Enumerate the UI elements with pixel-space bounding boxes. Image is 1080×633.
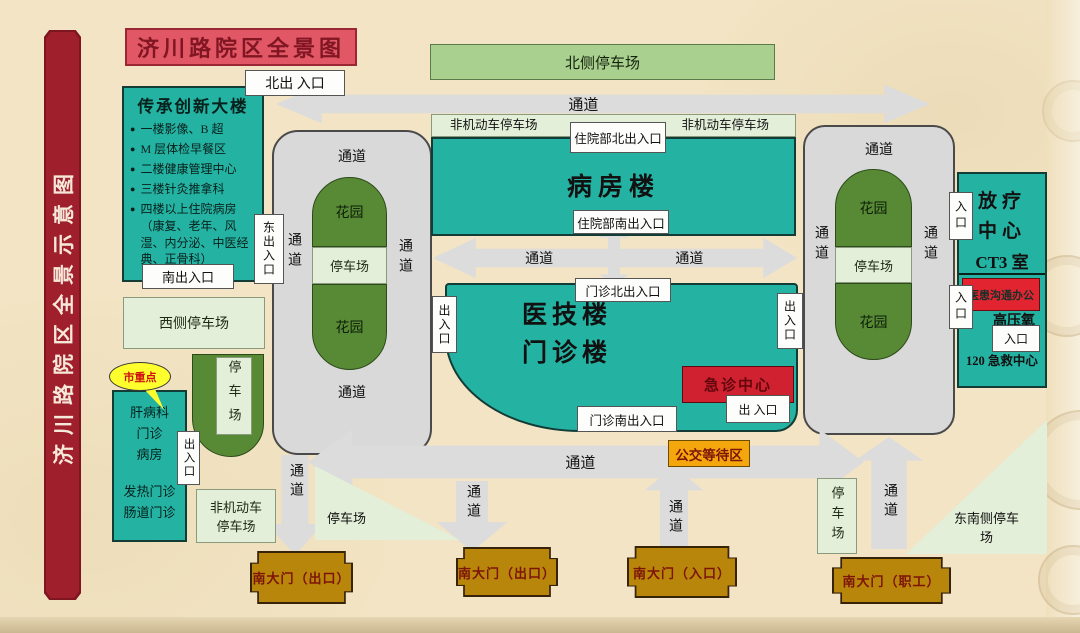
clinic-north-door: 门诊北出入口 bbox=[575, 278, 671, 302]
garden-label: 花园 bbox=[860, 198, 888, 218]
bottom-edge-strip bbox=[0, 617, 1080, 633]
comm-office: 医患沟通办公 bbox=[962, 278, 1040, 311]
channel-label: 通道 bbox=[285, 463, 305, 501]
heritage-north-door: 北出 入口 bbox=[245, 70, 345, 96]
bullet-icon: ● bbox=[130, 161, 135, 178]
liver-dept-building: 肝病科 门诊 病房 发热门诊 肠道门诊 bbox=[112, 390, 187, 542]
side-ribbon: 济川路院区全景示意图 bbox=[44, 30, 81, 600]
emergency-center-label: 急诊中心 bbox=[704, 374, 772, 395]
channel-label: 通道 bbox=[810, 225, 830, 265]
comm-office-entrance-door: 入口 bbox=[949, 285, 973, 329]
page-title: 济川路院区全景图 bbox=[137, 31, 345, 63]
parking-label: 停车场 bbox=[225, 360, 244, 432]
se-parking-label: 东南侧停车 场 bbox=[934, 508, 1039, 546]
hyperbaric-entrance-door: 入口 bbox=[992, 325, 1040, 352]
clinic-west-door: 出入口 bbox=[432, 296, 457, 353]
nonmotor-parking-label: 非机动车停车场 bbox=[450, 115, 538, 136]
building-floor-item: 一楼影像、B 超 bbox=[140, 121, 223, 138]
title-banner: 济川路院区全景图 bbox=[125, 28, 357, 66]
gate2-channel-arrow: 通道 bbox=[437, 481, 507, 552]
garden-label: 花园 bbox=[336, 317, 364, 337]
bullet-icon: ● bbox=[130, 201, 135, 268]
liver-line: 门诊 bbox=[114, 423, 185, 444]
inpatient-north-door: 住院部北出入口 bbox=[570, 122, 666, 153]
channel-label: 通道 bbox=[919, 225, 939, 265]
mid-left-channel-arrow: 通道 bbox=[433, 237, 637, 279]
decor-ring bbox=[1038, 545, 1080, 615]
heritage-east-door: 东出入口 bbox=[254, 214, 284, 284]
clinic-east-door: 出入口 bbox=[777, 293, 803, 349]
city-key-badge: 市重点 bbox=[109, 362, 171, 391]
parking-label: 停车场 bbox=[330, 256, 369, 275]
radiotherapy-entrance-door: 入口 bbox=[949, 192, 973, 240]
inpatient-south-door: 住院部南出入口 bbox=[573, 210, 669, 234]
garden-area: 花园 bbox=[835, 283, 912, 360]
building-name: 传承创新大楼 bbox=[130, 93, 256, 117]
bullet-icon: ● bbox=[130, 141, 135, 158]
heritage-innovation-building: 传承创新大楼 ●一楼影像、B 超 ●M 层体检早餐区 ●二楼健康管理中心 ●三楼… bbox=[122, 86, 264, 282]
emergency-door: 出 入口 bbox=[726, 395, 790, 423]
channel-label: 通道 bbox=[568, 94, 598, 115]
building-floor-item: 二楼健康管理中心 bbox=[140, 161, 236, 178]
garden-label: 花园 bbox=[860, 312, 888, 332]
north-parking-lot: 北侧停车场 bbox=[430, 44, 775, 80]
bullet-icon: ● bbox=[130, 121, 135, 138]
channel-label: 通道 bbox=[865, 139, 893, 159]
garden-area: 花园 bbox=[835, 169, 912, 247]
channel-label: 通道 bbox=[462, 484, 482, 522]
bowel-clinic-line: 肠道门诊 bbox=[114, 502, 185, 523]
channel-label: 通道 bbox=[525, 248, 553, 268]
inner-parking: 停车场 bbox=[835, 247, 912, 283]
campus-map: 通道 通道 通道 通道 通道 花园 停车场 花园 通道 通道 通道 花园 停车场… bbox=[0, 0, 1080, 633]
parking-label: 停车场 bbox=[854, 256, 893, 275]
channel-label: 通道 bbox=[675, 248, 703, 268]
channel-label: 通道 bbox=[283, 232, 303, 272]
south-gate-staff: 南大门（职工） bbox=[832, 557, 951, 604]
city-key-label: 市重点 bbox=[124, 369, 157, 385]
south-gate-exit-2: 南大门（出口） bbox=[456, 547, 558, 597]
channel-label: 通道 bbox=[565, 452, 595, 473]
building-floor-item: M 层体检早餐区 bbox=[140, 141, 226, 158]
building-name: 医技楼 门诊楼 bbox=[487, 295, 647, 369]
east-ring-road: 通道 通道 通道 花园 停车场 花园 bbox=[803, 125, 955, 435]
channel-label: 通道 bbox=[394, 238, 414, 278]
inner-parking: 停车场 bbox=[312, 247, 387, 284]
nonmotor-parking-label: 非机动车停车场 bbox=[681, 115, 769, 136]
heritage-south-door: 南出入口 bbox=[142, 264, 234, 289]
clinic-south-door: 门诊南出入口 bbox=[577, 406, 677, 432]
garden-area: 花园 bbox=[312, 177, 387, 247]
west-ring-road: 通道 通道 通道 通道 花园 停车场 花园 bbox=[272, 130, 432, 455]
channel-label: 通道 bbox=[338, 382, 366, 402]
ribbon-title: 济川路院区全景示意图 bbox=[48, 165, 78, 465]
bus-waiting-label: 公交等待区 bbox=[675, 444, 743, 464]
garden-label: 花园 bbox=[336, 202, 364, 222]
channel-label: 通道 bbox=[338, 146, 366, 166]
fever-clinic-line: 发热门诊 bbox=[114, 481, 185, 502]
channel-label: 通道 bbox=[879, 483, 899, 521]
gate4-channel-arrow: 通道 bbox=[855, 437, 923, 549]
inner-parking: 停车场 bbox=[216, 357, 252, 435]
west-u-parking: 停车场 bbox=[192, 354, 264, 457]
west-parking-label: 西侧停车场 bbox=[159, 313, 229, 333]
nonmotor-line1: 非机动车 bbox=[210, 497, 262, 516]
building-floor-item: 三楼针灸推拿科 bbox=[140, 181, 224, 198]
north-parking-label: 北侧停车场 bbox=[565, 52, 640, 73]
building-name-line2: 中心 bbox=[978, 216, 1026, 243]
mid-right-channel-arrow: 通道 bbox=[637, 237, 797, 279]
liver-line: 病房 bbox=[114, 444, 185, 465]
west-parking-lot: 西侧停车场 bbox=[123, 297, 265, 349]
south-gate-exit-1: 南大门（出口） bbox=[250, 551, 353, 604]
building-name-line1: 放疗 bbox=[978, 186, 1026, 213]
comm-office-label: 医患沟通办公 bbox=[968, 287, 1034, 303]
building-name: 病房楼 bbox=[567, 167, 660, 203]
parking-label: 停车场 bbox=[828, 486, 847, 546]
channel-label: 通道 bbox=[664, 499, 684, 537]
south-parking-box: 停车场 bbox=[817, 478, 857, 554]
nonmotor-line2: 停车场 bbox=[210, 516, 262, 535]
building-floor-item: 四楼以上住院病房（康复、老年、风湿、内分泌、中医经典、正骨科） bbox=[140, 201, 256, 268]
garden-area: 花园 bbox=[312, 284, 387, 370]
liver-dept-door: 出入口 bbox=[177, 431, 200, 485]
se-parking-triangle: 东南侧停车 场 bbox=[906, 420, 1047, 554]
bullet-icon: ● bbox=[130, 181, 135, 198]
parking-label: 停车场 bbox=[327, 508, 366, 527]
ct3-room-label: CT3 室 bbox=[975, 248, 1028, 273]
south-gate-entrance: 南大门（入口） bbox=[627, 546, 737, 598]
sw-nonmotor-parking: 非机动车 停车场 bbox=[196, 489, 276, 543]
divider-line bbox=[959, 273, 1045, 275]
bus-waiting-area: 公交等待区 bbox=[668, 440, 750, 467]
liver-line: 肝病科 bbox=[114, 402, 185, 423]
rescue-120-label: 120 急救中心 bbox=[966, 350, 1038, 369]
